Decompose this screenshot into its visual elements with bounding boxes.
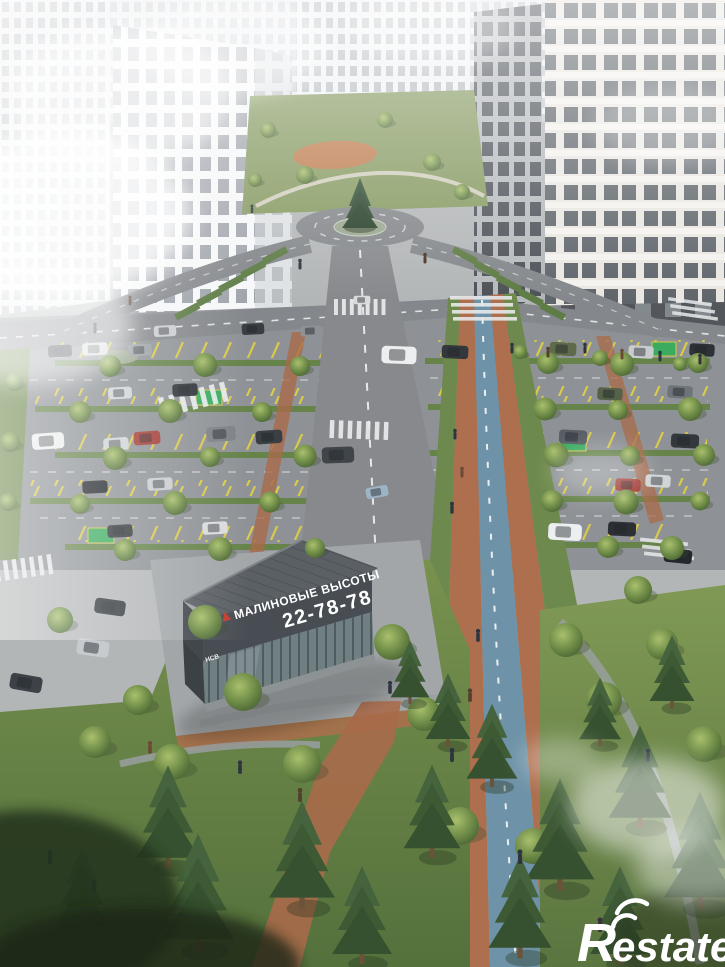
render-scene: МАЛИНОВЫЕ ВЫСОТЫ 22-78-78 НСВ bbox=[0, 0, 725, 967]
watermark-text: estate bbox=[612, 923, 725, 967]
property-render-image: МАЛИНОВЫЕ ВЫСОТЫ 22-78-78 НСВ bbox=[0, 0, 725, 967]
watermark-initial: R bbox=[577, 913, 616, 967]
